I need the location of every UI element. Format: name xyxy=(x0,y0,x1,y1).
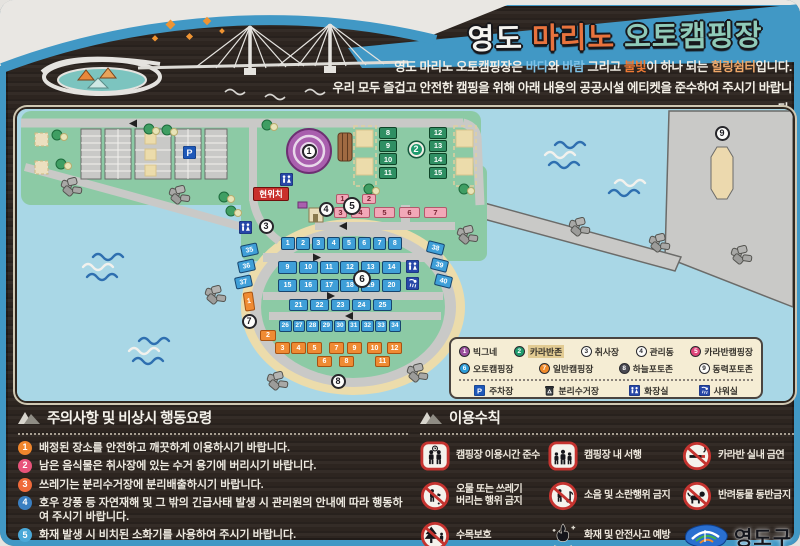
tent-icon xyxy=(420,411,442,425)
map-unit-25: 25 xyxy=(373,299,392,311)
legend-item: 4관리동 xyxy=(636,345,674,358)
nonoise-icon xyxy=(548,481,578,511)
tree-icon xyxy=(420,521,450,546)
legend-badge: 7 xyxy=(539,363,550,374)
intro-segment: 힐링쉼터 xyxy=(711,60,755,74)
legend-label: 카라반캠핑장 xyxy=(704,345,753,358)
map-unit-3: 3 xyxy=(275,342,290,354)
notice-item: 1배정된 장소를 안전하고 깨끗하게 이용하시기 바랍니다. xyxy=(18,441,408,455)
notice-text: 남은 음식물은 취사장에 있는 수거 용기에 버리시기 바랍니다. xyxy=(39,459,316,473)
shower-icon xyxy=(699,385,710,396)
intro-segment: 영도 마리노 오토캠핑장은 xyxy=(394,60,526,74)
map-unit-15: 15 xyxy=(429,167,447,179)
map-unit-3: 3 xyxy=(312,237,326,250)
map-badge-3: 3 xyxy=(259,219,274,234)
fire-icon xyxy=(548,521,578,546)
map-badge-1: 1 xyxy=(302,144,317,159)
signboard-photo: 영도 마리노 오토캠핑장 영도 마리노 오토캠핑장은 바다와 바람 그리고 불빛… xyxy=(0,0,800,546)
legend-badge: 5 xyxy=(690,346,701,357)
notice-number-badge: 1 xyxy=(18,441,32,455)
notice-header: 주의사항 및 비상시 행동요령 xyxy=(18,407,408,435)
rule-item: 캠핑장 내 서행 xyxy=(548,441,682,471)
notice-item: 2남은 음식물은 취사장에 있는 수거 용기에 버리시기 바랍니다. xyxy=(18,459,408,473)
map-badge-8: 8 xyxy=(331,374,346,389)
intro-segment: 바람 xyxy=(562,60,584,74)
legend-facility: 화장실 xyxy=(629,384,668,397)
map-unit-2: 2 xyxy=(260,330,276,341)
current-location-sign: 현위치 xyxy=(253,187,289,201)
legend-item: 6오토캠핑장 xyxy=(459,362,513,375)
title-part-yeongdo: 영도 xyxy=(467,23,523,56)
legend-label: 동력포토존 xyxy=(713,362,753,375)
map-unit-12: 12 xyxy=(429,127,447,139)
nopets-icon xyxy=(682,481,712,511)
notice-item: 4호우 강풍 등 자연재해 및 그 밖의 긴급사태 발생 시 관리원의 안내에 … xyxy=(18,496,408,525)
legend-badge: 9 xyxy=(699,363,710,374)
notice-number-badge: 4 xyxy=(18,496,32,510)
page-title: 영도 마리노 오토캠핑장 xyxy=(438,12,793,59)
rule-label: 소음 및 소란행위 금지 xyxy=(584,490,670,502)
nosmoke-icon xyxy=(682,441,712,471)
rule-item: 반려동물 동반금지 xyxy=(682,481,794,511)
notice-item: 5화재 발생 시 비치된 소화기를 사용하여 주시기 바랍니다. xyxy=(18,528,408,542)
map-unit-32: 32 xyxy=(361,320,374,332)
map-unit-15: 15 xyxy=(278,279,297,292)
intro-segment: 그리고 xyxy=(584,60,624,74)
map-badge-9: 9 xyxy=(715,126,730,141)
map-unit-11: 11 xyxy=(320,261,339,274)
map-unit-20: 20 xyxy=(382,279,401,292)
map-unit-11: 11 xyxy=(379,167,397,179)
map-unit-8: 8 xyxy=(388,237,402,250)
legend-facility-label: 화장실 xyxy=(644,384,668,397)
legend-badge: 1 xyxy=(459,346,470,357)
map-unit-6: 6 xyxy=(358,237,372,250)
map-unit-9: 9 xyxy=(379,140,397,152)
title-part-autocamp: 오토캠핑장 xyxy=(624,20,763,54)
legend-label: 관리동 xyxy=(650,345,674,358)
legend-label: 빅그네 xyxy=(473,345,497,358)
map-unit-7: 7 xyxy=(373,237,387,250)
intro-segment: 이 하나 되는 xyxy=(646,60,711,74)
rule-label: 캠핑장 내 서행 xyxy=(584,450,642,462)
svg-text:P: P xyxy=(187,148,193,158)
map-unit-22: 22 xyxy=(310,299,329,311)
map-unit-23: 23 xyxy=(331,299,350,311)
map-unit-21: 21 xyxy=(289,299,308,311)
notice-text: 배정된 장소를 안전하고 깨끗하게 이용하시기 바랍니다. xyxy=(39,441,290,455)
rule-label: 오물 또는 쓰레기 버리는 행위 금지 xyxy=(456,484,522,508)
legend-badge: 2 xyxy=(514,346,525,357)
legend-facility: 샤워실 xyxy=(699,384,738,397)
map-unit-35: 35 xyxy=(240,242,259,257)
notice-number-badge: 5 xyxy=(18,528,32,542)
map-unit-28: 28 xyxy=(306,320,319,332)
legend-facility-label: 샤워실 xyxy=(714,384,738,397)
wc-icon xyxy=(629,385,640,396)
map-badge-6: 6 xyxy=(353,270,371,288)
map-legend: 1빅그네2카라반존3취사장4관리동5카라반캠핑장6오토캠핑장7일반캠핑장8하늘포… xyxy=(449,337,763,399)
map-unit-2: 2 xyxy=(362,194,376,204)
svg-text:P: P xyxy=(477,387,482,396)
notice-text: 호우 강풍 등 자연재해 및 그 밖의 긴급사태 발생 시 관리원의 안내에 따… xyxy=(39,496,408,525)
intro-segment: 바다 xyxy=(526,60,548,74)
map-unit-11: 11 xyxy=(375,356,390,367)
map-unit-10: 10 xyxy=(379,153,397,165)
slow-icon xyxy=(548,441,578,471)
map-badge-4: 4 xyxy=(319,202,334,217)
legend-item: 9동력포토존 xyxy=(699,362,753,375)
legend-label: 오토캠핑장 xyxy=(473,362,513,375)
map-unit-8: 8 xyxy=(339,356,354,367)
map-unit-33: 33 xyxy=(375,320,388,332)
rule-label: 반려동물 동반금지 xyxy=(718,490,791,502)
logo-text: 영도구 xyxy=(734,522,792,546)
bin-icon xyxy=(544,385,555,396)
intro-line1: 영도 마리노 오토캠핑장은 바다와 바람 그리고 불빛이 하나 되는 힐링쉼터입… xyxy=(330,57,792,78)
legend-label: 취사장 xyxy=(595,345,619,358)
nolitter-icon xyxy=(420,481,450,511)
map-unit-36: 36 xyxy=(237,258,256,273)
map-unit-10: 10 xyxy=(367,342,382,354)
intro-segment: 와 xyxy=(548,60,562,74)
map-unit-39: 39 xyxy=(430,257,449,273)
map-unit-17: 17 xyxy=(320,279,339,292)
campground-map: 1234567891011121314151617181920212223242… xyxy=(15,107,795,403)
tent-icon xyxy=(18,411,40,425)
rule-item: 화재 및 안전사고 예방 xyxy=(548,521,682,546)
rules-grid: 캠핑장 이용시간 준수캠핑장 내 서행카라반 실내 금연오물 또는 쓰레기 버리… xyxy=(420,441,794,546)
legend-facilities: P주차장분리수거장화장실샤워실 xyxy=(459,379,753,397)
rule-label: 화재 및 안전사고 예방 xyxy=(584,530,670,542)
legend-badge: 8 xyxy=(619,363,630,374)
map-unit-14: 14 xyxy=(382,261,401,274)
rule-label: 캠핑장 이용시간 준수 xyxy=(456,450,540,462)
map-unit-34: 34 xyxy=(389,320,402,332)
legend-facility-label: 분리수거장 xyxy=(559,384,599,397)
notice-text: 화재 발생 시 비치된 소화기를 사용하여 주시기 바랍니다. xyxy=(39,528,296,542)
legend-row: 1빅그네2카라반존3취사장4관리동5카라반캠핑장 xyxy=(459,343,753,360)
map-badge-5: 5 xyxy=(343,197,361,215)
map-unit-5: 5 xyxy=(374,207,395,218)
legend-facility-label: 주차장 xyxy=(489,384,513,397)
legend-label: 하늘포토존 xyxy=(633,362,673,375)
map-unit-37: 37 xyxy=(234,274,253,289)
rule-item: 소음 및 소란행위 금지 xyxy=(548,481,682,511)
map-unit-16: 16 xyxy=(299,279,318,292)
shower-icon xyxy=(406,277,419,295)
map-unit-29: 29 xyxy=(320,320,333,332)
map-unit-2: 2 xyxy=(296,237,310,250)
legend-badge: 6 xyxy=(459,363,470,374)
map-unit-1: 1 xyxy=(281,237,295,250)
map-unit-27: 27 xyxy=(293,320,306,332)
parking-icon: P xyxy=(183,146,196,164)
map-overlay: 1234567891011121314151617181920212223242… xyxy=(17,109,793,401)
map-unit-9: 9 xyxy=(278,261,297,274)
rule-label: 수목보호 xyxy=(456,530,491,542)
wc-icon xyxy=(406,260,419,278)
map-unit-40: 40 xyxy=(434,273,453,289)
map-unit-5: 5 xyxy=(307,342,322,354)
legend-item: 7일반캠핑장 xyxy=(539,362,593,375)
map-unit-31: 31 xyxy=(348,320,361,332)
map-unit-12: 12 xyxy=(387,342,402,354)
sign-board: 영도 마리노 오토캠핑장 영도 마리노 오토캠핑장은 바다와 바람 그리고 불빛… xyxy=(0,0,800,546)
notice-number-badge: 3 xyxy=(18,478,32,492)
legend-badge: 4 xyxy=(636,346,647,357)
map-unit-6: 6 xyxy=(399,207,420,218)
map-unit-5: 5 xyxy=(342,237,356,250)
map-unit-30: 30 xyxy=(334,320,347,332)
map-unit-24: 24 xyxy=(352,299,371,311)
notice-number-badge: 2 xyxy=(18,459,32,473)
notice-list: 1배정된 장소를 안전하고 깨끗하게 이용하시기 바랍니다.2남은 음식물은 취… xyxy=(18,441,408,543)
sparkle-icons xyxy=(152,17,225,42)
map-unit-1: 1 xyxy=(243,291,256,311)
map-unit-9: 9 xyxy=(347,342,362,354)
legend-label: 카라반존 xyxy=(528,345,564,358)
parking-icon: P xyxy=(474,385,485,396)
map-unit-7: 7 xyxy=(424,207,447,218)
map-unit-6: 6 xyxy=(317,356,332,367)
legend-item: 5카라반캠핑장 xyxy=(690,345,753,358)
map-unit-8: 8 xyxy=(379,127,397,139)
notice-item: 3쓰레기는 분리수거장에 분리배출하시기 바랍니다. xyxy=(18,478,408,492)
legend-item: 3취사장 xyxy=(581,345,619,358)
legend-label: 일반캠핑장 xyxy=(553,362,593,375)
yeongdo-gu-logo: 영도구 xyxy=(682,521,794,546)
wc-icon xyxy=(239,221,252,239)
notice-section: 주의사항 및 비상시 행동요령 1배정된 장소를 안전하고 깨끗하게 이용하시기… xyxy=(18,407,408,546)
legend-facility: 분리수거장 xyxy=(544,384,599,397)
rule-item: 수목보호 xyxy=(420,521,548,546)
map-unit-26: 26 xyxy=(279,320,292,332)
intro-segment: 불빛 xyxy=(624,60,646,74)
map-badge-7: 7 xyxy=(242,314,257,329)
map-unit-13: 13 xyxy=(429,140,447,152)
logo-icon xyxy=(682,521,728,546)
rule-item: 카라반 실내 금연 xyxy=(682,441,794,471)
rule-label: 카라반 실내 금연 xyxy=(718,450,784,462)
rule-item: 캠핑장 이용시간 준수 xyxy=(420,441,548,471)
title-part-marino: 마리노 xyxy=(532,22,615,55)
map-unit-10: 10 xyxy=(299,261,318,274)
legend-item: 8하늘포토존 xyxy=(619,362,673,375)
map-unit-14: 14 xyxy=(429,153,447,165)
rules-section: 이용수칙 캠핑장 이용시간 준수캠핑장 내 서행카라반 실내 금연오물 또는 쓰… xyxy=(420,407,794,546)
rules-header: 이용수칙 xyxy=(420,407,794,435)
notice-text: 쓰레기는 분리수거장에 분리배출하시기 바랍니다. xyxy=(39,478,264,492)
map-unit-7: 7 xyxy=(329,342,344,354)
rules-title: 이용수칙 xyxy=(449,407,500,428)
map-unit-4: 4 xyxy=(291,342,306,354)
notice-title: 주의사항 및 비상시 행동요령 xyxy=(47,407,212,428)
legend-badge: 3 xyxy=(581,346,592,357)
legend-item: 2카라반존 xyxy=(514,345,564,358)
time-icon xyxy=(420,441,450,471)
intro-segment: 입니다. xyxy=(756,60,792,74)
rule-item: 오물 또는 쓰레기 버리는 행위 금지 xyxy=(420,481,548,511)
map-unit-4: 4 xyxy=(327,237,341,250)
map-badge-2: 2 xyxy=(409,142,424,157)
map-unit-38: 38 xyxy=(426,240,445,256)
legend-row: 6오토캠핑장7일반캠핑장8하늘포토존9동력포토존 xyxy=(459,360,753,377)
legend-facility: P주차장 xyxy=(474,384,513,397)
legend-item: 1빅그네 xyxy=(459,345,497,358)
